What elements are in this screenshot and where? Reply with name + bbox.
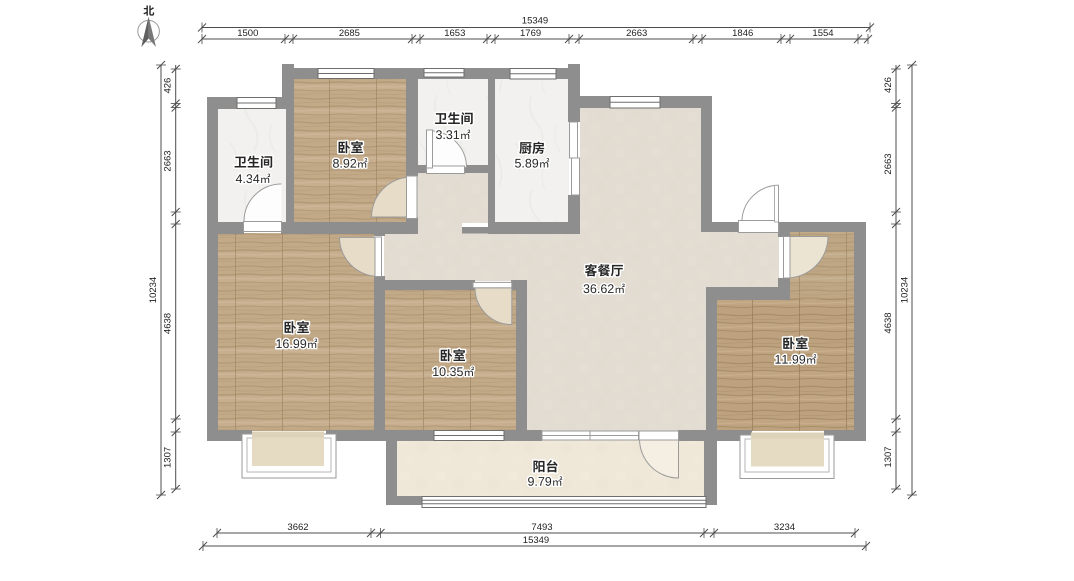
- svg-text:2663: 2663: [883, 153, 894, 174]
- svg-text:15349: 15349: [523, 535, 549, 546]
- svg-text:3234: 3234: [774, 522, 795, 533]
- svg-text:4638: 4638: [163, 313, 174, 334]
- svg-text:10234: 10234: [900, 277, 911, 303]
- svg-text:4638: 4638: [883, 312, 894, 333]
- svg-text:7493: 7493: [531, 522, 552, 533]
- svg-text:1846: 1846: [732, 28, 753, 39]
- svg-text:1500: 1500: [237, 28, 258, 39]
- svg-text:2663: 2663: [626, 28, 647, 39]
- svg-text:426: 426: [163, 78, 174, 94]
- svg-text:2685: 2685: [339, 28, 360, 39]
- svg-text:2663: 2663: [163, 150, 174, 171]
- svg-text:1307: 1307: [883, 446, 894, 467]
- svg-text:1653: 1653: [444, 28, 465, 39]
- svg-text:1554: 1554: [812, 28, 833, 39]
- svg-text:10234: 10234: [148, 277, 159, 303]
- svg-text:426: 426: [883, 77, 894, 93]
- svg-text:15349: 15349: [522, 16, 548, 27]
- svg-text:1307: 1307: [163, 447, 174, 468]
- svg-text:1769: 1769: [520, 28, 541, 39]
- svg-text:3662: 3662: [287, 522, 308, 533]
